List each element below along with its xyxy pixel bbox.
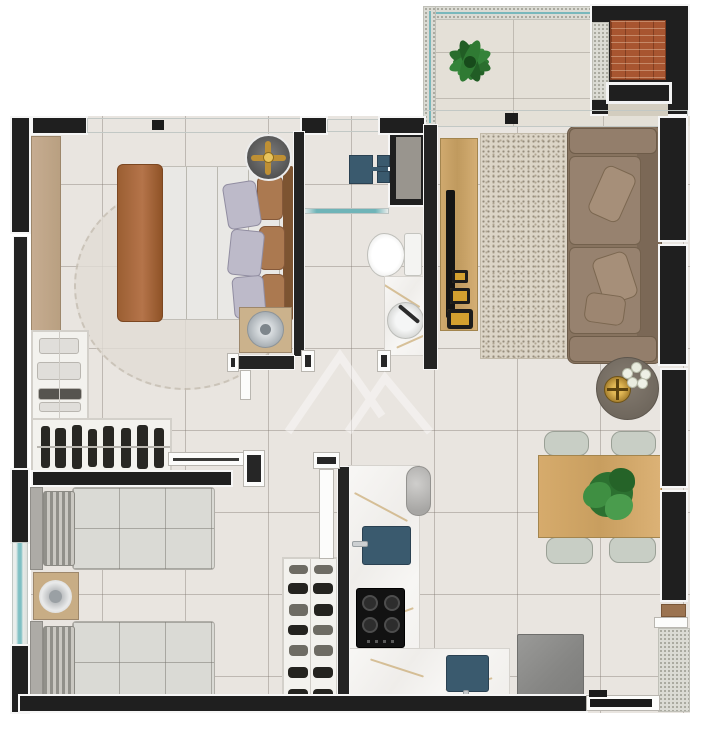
dining-chair-3 bbox=[546, 537, 593, 564]
wall-right-dining-1 bbox=[660, 368, 688, 488]
floor-plan bbox=[0, 0, 709, 750]
wall-right-living-2 bbox=[658, 244, 688, 366]
console-decor-3 bbox=[447, 309, 473, 329]
kitchen-door-frame bbox=[313, 452, 340, 469]
wall-bottom bbox=[18, 694, 588, 713]
pillow-gray-2 bbox=[227, 228, 266, 277]
wall-kitchen-bedroom2 bbox=[337, 466, 350, 712]
pillow-brown-1 bbox=[257, 176, 283, 220]
shower-control-bottom bbox=[377, 171, 390, 183]
pillow-gray-1 bbox=[222, 180, 263, 231]
kitchen-door-leaf bbox=[319, 469, 334, 559]
cooktop bbox=[356, 588, 405, 648]
balcony-sliding-door bbox=[423, 110, 688, 127]
wall-right-dining-2 bbox=[660, 490, 688, 602]
wall-right-living-1 bbox=[658, 116, 688, 242]
wall-bathroom-right bbox=[423, 124, 438, 370]
wall-bedroom2-top bbox=[31, 470, 233, 487]
sofa-pillow-3 bbox=[583, 291, 627, 326]
dining-chair-2 bbox=[611, 431, 656, 456]
balcony-plant bbox=[438, 30, 502, 94]
bedroom2-door-frame bbox=[243, 450, 265, 487]
entrance-door-handle bbox=[589, 690, 607, 697]
shower-glass-partition bbox=[303, 208, 389, 214]
grill-counter bbox=[606, 82, 672, 104]
refrigerator bbox=[517, 634, 584, 696]
balcony-railing-left bbox=[423, 6, 436, 126]
living-room-rug bbox=[480, 133, 573, 359]
prep-sink-faucet bbox=[352, 541, 368, 547]
kitchen-main-sink bbox=[446, 655, 489, 692]
sofa-armrest-top bbox=[569, 128, 657, 154]
brick-grill bbox=[610, 20, 666, 80]
nightstand-dish-core bbox=[49, 590, 62, 603]
wall-left-middle bbox=[13, 236, 28, 470]
closet-shelf-unit bbox=[31, 330, 89, 420]
external-door bbox=[661, 604, 686, 617]
bedroom-door-jamb bbox=[227, 353, 239, 372]
wall-bedroom-bathroom bbox=[293, 131, 305, 357]
bathroom-window bbox=[327, 119, 379, 132]
wall-left-bedroom2-upper bbox=[10, 468, 30, 544]
entrance-door-leaf bbox=[590, 699, 652, 707]
bedroom-window-handle bbox=[152, 120, 164, 130]
kitchen-prep-sink bbox=[362, 526, 411, 565]
shower-head bbox=[349, 155, 373, 184]
bedroom2-sliding-door bbox=[168, 452, 244, 466]
balcony-door-handle bbox=[505, 113, 518, 124]
console-decor-1 bbox=[452, 270, 468, 283]
single-bed-a bbox=[30, 487, 215, 570]
bed-a-duvet bbox=[72, 487, 215, 570]
dining-chair-1 bbox=[544, 431, 589, 456]
wall-left-upper bbox=[10, 116, 31, 234]
closet-hanging-rail bbox=[31, 418, 172, 474]
toilet-tank bbox=[404, 233, 422, 276]
bedroom-door-leaf bbox=[240, 370, 251, 400]
console-decor-2 bbox=[450, 288, 470, 304]
counter-column-cylinder bbox=[406, 466, 431, 516]
bedroom2-window bbox=[12, 542, 28, 646]
master-bed bbox=[113, 164, 293, 322]
bed-b-pleated-throw bbox=[43, 626, 75, 702]
ceiling-fan bbox=[245, 134, 292, 181]
bed-a-headboard bbox=[30, 487, 43, 570]
sofa-armrest-bottom bbox=[569, 336, 657, 362]
bed-throw-blanket bbox=[117, 164, 163, 322]
wall-bathroom-top-right bbox=[378, 116, 426, 135]
wardrobe-strip bbox=[31, 136, 61, 332]
shower-control-top bbox=[377, 155, 390, 167]
external-corridor bbox=[658, 628, 690, 712]
external-door-frame bbox=[654, 617, 688, 628]
watermark-logo bbox=[282, 342, 442, 437]
side-table-flowers bbox=[622, 362, 652, 390]
bedroom-window-band bbox=[87, 118, 303, 133]
barbecue-block bbox=[590, 4, 690, 116]
dining-table-plant bbox=[583, 466, 637, 523]
nightstand-lamp-core bbox=[260, 324, 271, 335]
bathroom-shaft-inner bbox=[396, 137, 421, 199]
shoe-rack bbox=[282, 557, 338, 709]
sofa bbox=[565, 126, 662, 364]
dining-chair-4 bbox=[609, 536, 656, 563]
balcony-railing-top bbox=[423, 6, 593, 20]
wall-bedroom-top-left bbox=[31, 116, 88, 135]
bed-a-pleated-throw bbox=[43, 491, 75, 566]
